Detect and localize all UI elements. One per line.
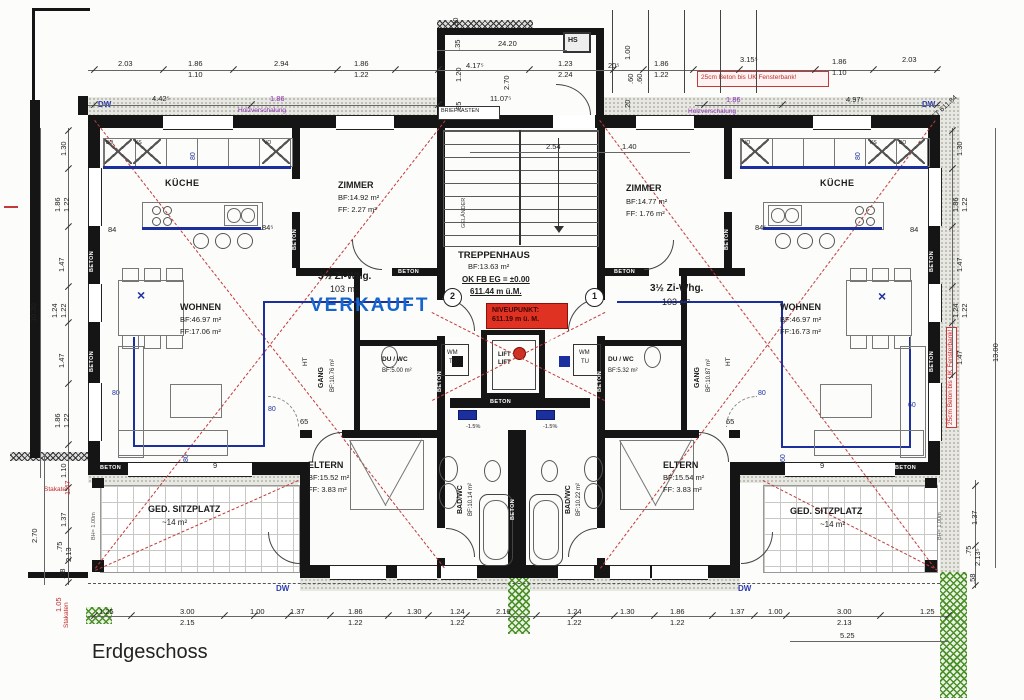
dim-line [44,455,45,585]
room-eltern-left-ff: FF: 3.83 m² [308,486,347,494]
burner [855,217,864,226]
appliance-code: VO [264,141,271,146]
pipe [103,166,291,169]
room-sitzplatz-left-area: ~14 m² [162,519,187,527]
room-treppenhaus: TREPPENHAUS [458,251,530,261]
ext-line [648,10,649,93]
dim-line [975,480,976,588]
dim: 1.23 [558,60,573,68]
shaft-blue [559,356,570,367]
dim: 1.47 [58,353,66,368]
dim: 1.86 [54,413,62,428]
room-wohnen-right-bf: BF:46.97 m² [780,316,821,324]
washbasin [584,483,603,509]
dim: 2.94 [274,60,289,68]
x-mark: × [137,288,145,302]
property-line [88,583,940,584]
dim-line [88,105,438,106]
washbasin [439,483,458,509]
sink-bowl [227,208,241,223]
room-sitzplatz-right-area: ~14 m² [820,521,845,529]
beton-note: 25cm Beton bis UK Fensterbank! [701,75,796,82]
shower-drain [458,410,477,420]
red-mark [4,206,18,208]
sofa [118,430,228,456]
holzverschalung-label: Holzverschalung [238,108,286,115]
dim: 1.86 [832,58,847,66]
site-wall-left-thin [32,8,35,100]
elevation-label: 611.44 m ü.M. [470,288,522,296]
pipe [142,227,261,230]
room-wohnen-right-ff: FF:16.73 m² [780,328,821,336]
window [928,284,942,322]
bathtub-inner [533,500,559,560]
entrance-opening [553,115,595,128]
sofa [814,430,924,456]
apartment-right-type: 3½ Zi-Whg. [650,284,703,294]
floor-plan: GELÄNDER LIFT LIFT WM TU WM TU -1.5% -1.… [0,0,1024,700]
room-badwc-left-bf: BF:10.14 m² [468,483,474,516]
dim: 1.86 [654,60,669,68]
beton-label: BETON [293,229,299,250]
dim: 1.86 [270,95,285,103]
dim: 1.86 [354,60,369,68]
dim: 9 [820,462,824,470]
apartment-left-area: 103 m² [330,285,358,294]
beton-label: BETON [398,270,419,276]
room-duwc-left-bf: BF:5.00 m² [382,368,412,374]
dim: 1.24 [450,608,465,616]
wall-lift [539,330,545,398]
bh-label: BH= 1.00m [938,512,944,540]
tu-label: TU [581,359,589,365]
planting-bottom-right [940,572,967,698]
dim: 1.47 [956,257,964,272]
room-zimmer-right: ZIMMER [626,184,662,193]
site-wall-top [32,8,90,11]
door [644,240,674,270]
dim: 1.25 [920,608,935,616]
dim: 1.22 [654,71,669,79]
wm-label: WM [579,350,590,356]
room-zimmer-left: ZIMMER [338,181,374,190]
dim: 1.22 [348,619,363,627]
appliance-code: KS [135,141,142,146]
window [636,115,694,130]
gelaender-label: GELÄNDER [462,198,468,228]
wm-label: WM [447,350,458,356]
window [330,565,386,580]
stool [193,233,209,249]
beton-label: BETON [598,371,604,392]
appliance-code: BO [899,141,906,146]
wall [354,346,360,430]
room-eltern-right-ff: FF: 3.83 m² [663,486,702,494]
wall [342,430,437,438]
washbasin [584,456,603,482]
dim: 1.47 [58,257,66,272]
wall [300,430,312,438]
room-eltern-left: ELTERN [308,461,343,470]
room-eltern-right: ELTERN [663,461,698,470]
wall [730,462,740,578]
appliance-code: KS [870,141,877,146]
door [568,528,597,557]
site-wall-left [30,100,40,458]
window [558,565,594,580]
dim: 1.86 [670,608,685,616]
door [352,240,382,270]
wall [681,346,687,430]
dim: .58 [59,569,67,579]
hatch-strip-left [10,452,96,461]
dim: .75 [56,542,64,552]
dim: 2.13⁵ [974,548,982,566]
room-duwc-right-bf: BF:5.32 m² [608,368,638,374]
dim-line [470,152,690,153]
dim: 9 [213,462,217,470]
stair-flight [443,130,599,247]
dim: 1.22 [670,619,685,627]
dim: 1.24 [952,303,960,318]
level-label: OK FB EG = ±0.00 [462,276,530,284]
beton-label: BETON [90,251,96,272]
stool [237,233,253,249]
dim: 4.17⁵ [466,62,484,70]
room-zimmer-right-ff: FF: 1.76 m² [626,210,665,218]
chair [122,268,139,282]
dim-line [695,105,940,106]
dim: 5.25 [840,632,855,640]
dim: 1.30 [407,608,422,616]
beton-label: BETON [90,351,96,372]
wall [604,340,687,346]
appliance-code: BO [106,141,113,146]
chair [144,268,161,282]
pipe-dim: 80 [758,390,766,397]
dim: 84⁵ [755,224,766,232]
window [610,565,650,580]
ht-label: HT [303,357,310,366]
dim: 1.10 [60,463,68,478]
wall [292,121,300,179]
hs-label: HS [568,37,578,44]
burner [163,206,172,215]
dim: .75 [965,546,973,556]
sink-bowl [771,208,785,223]
unit-number-right: 1 [585,288,604,307]
beton-label: BETON [614,270,635,276]
stool [775,233,791,249]
room-kueche-left: KÜCHE [165,179,200,188]
room-badwc-left: BAD/WC [457,485,464,514]
dim: 10.30 [30,303,38,322]
beton-label: BETON [490,400,511,406]
dim: .60 [627,74,635,84]
dim: 1.86 [348,608,363,616]
dim: 2.13 [65,547,73,562]
stair-arrow-head [554,226,564,233]
bathtub-inner [483,500,509,560]
dim: 1.47 [956,350,964,365]
ext-line [684,10,685,93]
wall [354,340,437,346]
beton-label: BETON [930,251,936,272]
chair [872,268,889,282]
room-gang-left: GANG [318,367,325,388]
apartment-left-type: 3½ Zi-Whg. [318,272,371,282]
dim: 2.70 [503,75,511,90]
chair [144,335,161,349]
dim: 1.22 [961,303,969,318]
wall [724,121,732,179]
dim: 1.10 [832,69,847,77]
burner [163,217,172,226]
dim: 1.40 [622,143,637,151]
dim: 1.20 [455,67,463,82]
tick [934,66,941,73]
dw-label: DW [738,585,751,593]
stool [215,233,231,249]
x-mark: × [878,289,886,303]
planting-bottom-center [508,572,530,634]
slope-label: -1.5% [543,425,557,431]
beton-label: BETON [930,351,936,372]
dim: 4.42⁵ [152,95,170,103]
dim: 2.03 [118,60,133,68]
room-eltern-right-bf: BF:15.54 m² [663,474,704,482]
dim: 1.22 [567,619,582,627]
pipe [740,166,928,169]
room-gang-right: GANG [694,367,701,388]
burner [855,206,864,215]
slope-label: -1.5% [466,425,480,431]
sink-bowl [785,208,799,223]
terrace-right [763,485,938,573]
dim: 1.24 [51,303,59,318]
wall [604,430,699,438]
toilet [541,460,558,482]
stool [797,233,813,249]
dim-line [40,128,41,478]
apartment-right-area: 103 m² [662,298,690,307]
dim: 13.00 [992,343,1000,362]
dim: 3.00 [180,608,195,616]
room-duwc-right: DU / WC [608,357,634,364]
dim: 1.00 [250,608,265,616]
dim: .60 [636,74,644,84]
tick [65,579,72,586]
dim: 1.22 [63,197,71,212]
dim: 1.22 [961,197,969,212]
wall [729,430,740,438]
dim: 84⁵ [262,224,273,232]
burner [866,217,875,226]
terrace-post [925,478,937,488]
niveupunkt-line2: 611.19 m ü. M. [492,316,539,323]
dim: 1.10 [188,71,203,79]
dim: 1.22 [450,619,465,627]
window [928,168,942,226]
toilet [644,346,661,368]
opening [268,396,299,427]
beton-label: BETON [511,499,517,520]
niveupunkt-line1: NIVEUPUNKT: [492,307,539,314]
stool [819,233,835,249]
dim: 1.24 [567,608,582,616]
dim: 2.16 [496,608,511,616]
window [88,168,102,226]
coffee-table [820,384,872,418]
room-sitzplatz-left: GED. SITZPLATZ [148,505,220,514]
pipe [263,301,265,447]
window [928,383,942,441]
dim: 1.47 [64,480,72,495]
beton-label: BETON [446,338,467,344]
dim: 1.30 [620,608,635,616]
dim: .20 [624,100,632,110]
dim: 1.86 [952,197,960,212]
dim: 11.07⁵ [490,95,511,103]
window [336,115,394,130]
chair [166,268,183,282]
room-wohnen-left: WOHNEN [180,303,221,312]
room-duwc-left: DU / WC [382,357,408,364]
room-wohnen-left-ff: FF:17.06 m² [180,328,221,336]
toilet [484,460,501,482]
dim: 1.22 [63,413,71,428]
dim: 84 [108,226,116,234]
wall-tower [596,28,604,115]
window [441,565,477,580]
room-wohnen-right: WOHNEN [780,303,821,312]
beton-label: BETON [100,466,121,472]
dim: 2.24 [558,71,573,79]
dim: 1.37 [290,608,305,616]
window-terrace-door [785,462,895,477]
sink-bowl [241,208,255,223]
dw-label: DW [276,585,289,593]
room-zimmer-right-bf: BF:14.77 m² [626,198,667,206]
chair [166,335,183,349]
chair [894,268,911,282]
chair [850,268,867,282]
ext-line [612,10,613,93]
dim: 1.22 [354,71,369,79]
dim: 1.30 [60,141,68,156]
dim-line [88,616,948,617]
window [88,383,102,441]
dim: 1.86 [188,60,203,68]
dim: 1.37 [971,510,979,525]
window-terrace-door [128,462,252,477]
page-title: Erdgeschoss [92,642,208,662]
ht-label: HT [726,357,733,366]
dim: 3.15⁵ [740,56,758,64]
dim: 1.05 [55,597,63,612]
room-gang-left-bf: BF:10.76 m² [330,359,336,392]
coffee-table [170,384,222,418]
dim: .85 [455,102,463,112]
window [397,565,437,580]
burner [866,206,875,215]
wall-lift [481,330,545,335]
lift-label: LIFT [498,352,511,358]
room-gang-right-bf: BF:10.87 m² [706,359,712,392]
dim: .35 [454,40,462,50]
dining-table [118,280,184,336]
dim: 1.86 [54,197,62,212]
dim: 1.86 [726,96,741,104]
ext-line [756,10,757,93]
terrace-post [92,478,104,488]
beton-label: BETON [438,371,444,392]
window [652,565,708,580]
room-treppenhaus-bf: BF:13.63 m² [468,263,509,271]
door [699,432,729,462]
dim: 1.00 [624,45,632,60]
door [312,432,342,462]
room-badwc-right-bf: BF:10.22 m² [576,483,582,516]
appliance-code: VO [743,141,750,146]
room-zimmer-left-ff: FF: 2.27 m² [338,206,377,214]
dim: 24.20 [498,40,517,48]
dim-line [790,641,948,642]
tu-label: TU [449,359,457,365]
dim: 4.97⁵ [846,96,864,104]
dim: 65 [300,418,308,426]
room-badwc-right: BAD/WC [565,485,572,514]
dim: 3.00 [837,608,852,616]
dim: 20⁵ [608,62,619,70]
dim: 2.13 [837,619,852,627]
stair-divider [519,130,521,245]
ext-line [720,10,721,93]
dim: 1.37 [60,512,68,527]
chair [850,335,867,349]
pipe [617,301,783,303]
terrace-left [100,485,300,573]
stakaten-label: Stakaten [64,602,71,628]
dim: 2.54 [546,143,561,151]
washbasin [439,456,458,482]
shower-drain [536,410,555,420]
beton-label: BETON [895,466,916,472]
wall-beton [450,398,590,408]
window [813,115,871,130]
room-zimmer-left-bf: BF:14.92 m² [338,194,379,202]
pipe-dim: 60 [780,454,787,462]
door [446,528,475,557]
beton-label: BETON [725,229,731,250]
room-eltern-left-bf: BF:15.52 m² [308,474,349,482]
burner [152,217,161,226]
window [88,284,102,322]
dim: 2.70 [31,528,39,543]
burner [152,206,161,215]
dim: 1.25 [99,608,114,616]
dim: .30 [452,18,460,28]
room-kueche-right: KÜCHE [820,179,855,188]
dim: 1.00 [768,608,783,616]
exterior-band-top-right [604,97,940,115]
wall-cap [78,96,88,115]
dim: 1.22 [60,303,68,318]
window [163,115,233,130]
dim: .58 [969,574,977,584]
room-sitzplatz-right: GED. SITZPLATZ [790,507,862,516]
dim: 2.15 [180,619,195,627]
